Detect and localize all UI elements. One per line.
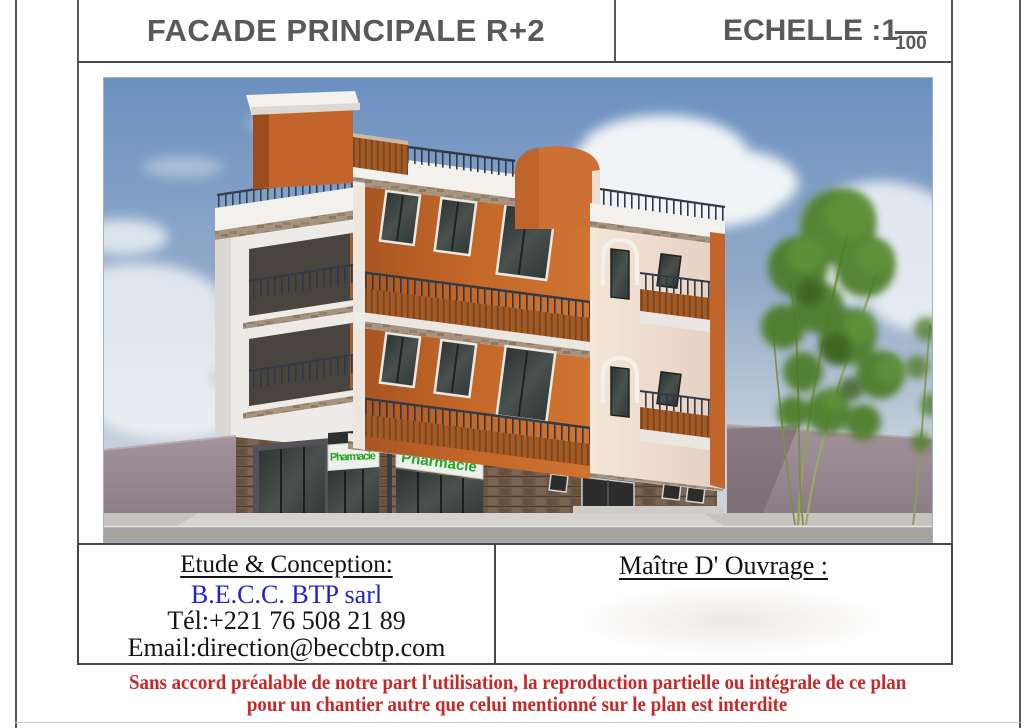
border-line-bottom — [15, 722, 1020, 723]
border-line-outer-left — [15, 0, 17, 728]
company-name: B.E.C.C. BTP sarl — [79, 581, 494, 608]
title-block-etude: Etude & Conception: B.E.C.C. BTP sarl Té… — [77, 543, 496, 665]
boundary-wall-right — [727, 425, 933, 527]
erased-watermark — [576, 585, 886, 657]
border-line-outer-right — [1019, 0, 1021, 728]
title-block-maitre: Maître D' Ouvrage : — [494, 543, 953, 665]
header-title-cell: FACADE PRINCIPALE R+2 — [77, 0, 615, 61]
right-wing — [590, 189, 725, 489]
header-scale-cell: ECHELLE : 1100 — [615, 0, 953, 61]
scale-label: ECHELLE : — [723, 14, 881, 48]
company-phone: Tél:+221 76 508 21 89 — [79, 608, 494, 634]
company-email: Email:direction@beccbtp.com — [79, 634, 494, 661]
border-line-under-title — [77, 61, 953, 63]
scale-fraction: 1100 — [881, 14, 926, 48]
etude-heading: Etude & Conception: — [79, 551, 494, 579]
maitre-heading: Maître D' Ouvrage : — [496, 551, 951, 581]
plan-sheet: FACADE PRINCIPALE R+2 ECHELLE : 1100 — [0, 0, 1030, 728]
scale-denominator: 100 — [895, 31, 927, 53]
disclaimer-line-1: Sans accord préalable de notre part l'ut… — [129, 672, 906, 694]
facade-rendering: Pharmacie Pharmacie — [103, 77, 933, 543]
copyright-disclaimer: Sans accord préalable de notre part l'ut… — [15, 672, 1020, 716]
disclaimer-line-2: pour un chantier autre que celui mention… — [247, 694, 787, 716]
pharmacie-sign-left-text: Pharmacie — [330, 450, 376, 464]
page-title: FACADE PRINCIPALE R+2 — [147, 13, 545, 49]
roof-arch — [515, 146, 600, 229]
